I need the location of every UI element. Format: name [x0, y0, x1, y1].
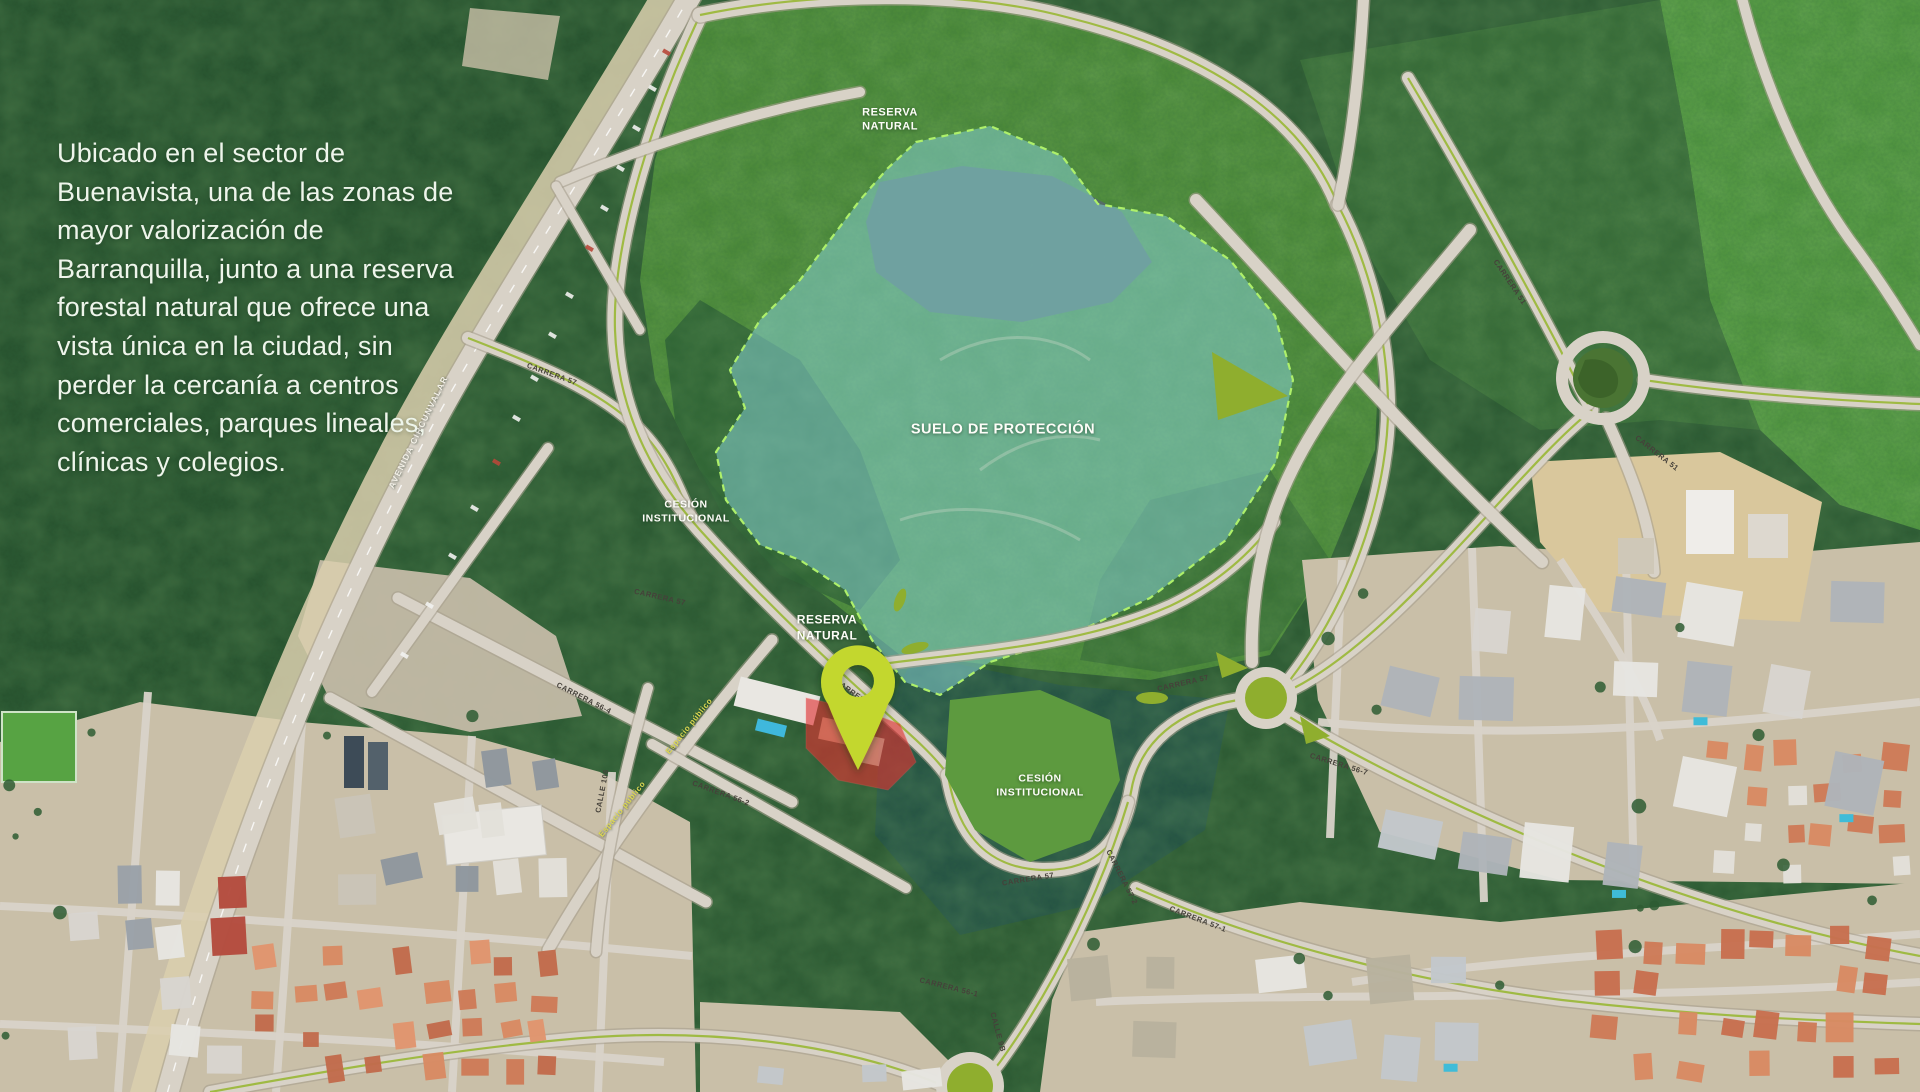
roundabout	[1245, 677, 1287, 719]
intro-line: clínicas y colegios.	[57, 443, 477, 482]
intro-line: Barranquilla, junto a una reserva	[57, 250, 477, 289]
soccer-field	[2, 712, 76, 782]
map-slide: CARRERA 57 RESERVANATURALSUELO DE PROTEC…	[0, 0, 1920, 1092]
location-description: Ubicado en el sector deBuenavista, una d…	[57, 134, 477, 481]
intro-line: Ubicado en el sector de	[57, 134, 477, 173]
intro-line: vista única en la ciudad, sin	[57, 327, 477, 366]
intro-line: comerciales, parques lineales,	[57, 404, 477, 443]
intro-line: mayor valorización de	[57, 211, 477, 250]
intro-line: Buenavista, una de las zonas de	[57, 173, 477, 212]
intro-line: forestal natural que ofrece una	[57, 288, 477, 327]
intro-line: perder la cercanía a centros	[57, 366, 477, 405]
